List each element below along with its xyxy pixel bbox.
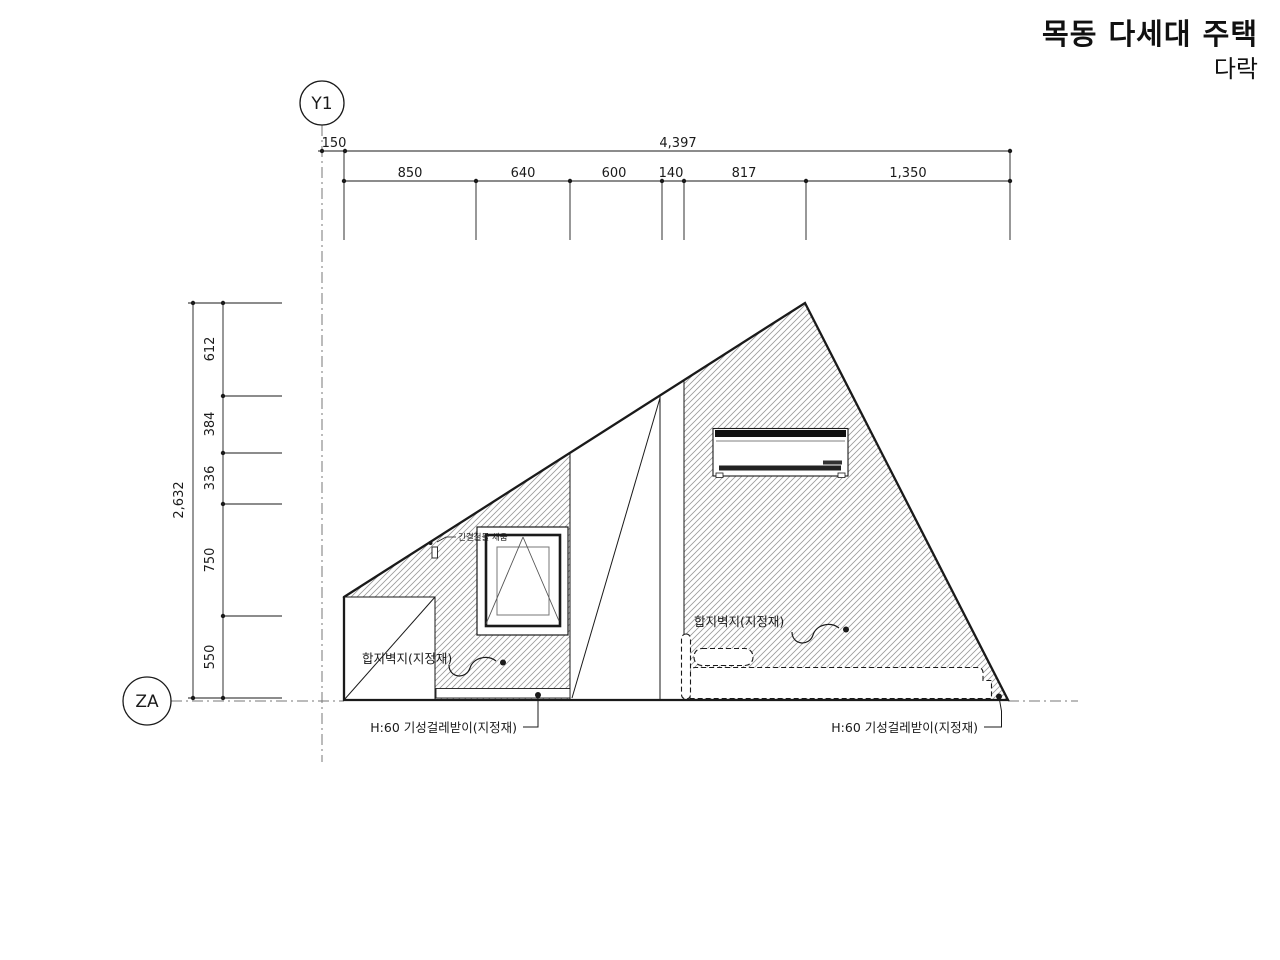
dim-817: 817 [732, 166, 757, 181]
dim-550: 550 [203, 645, 218, 670]
baseboard-leader-right [984, 697, 1002, 727]
bed-platform-outline [690, 668, 992, 699]
ac-louver [719, 466, 841, 471]
hatched-walls [344, 303, 1008, 700]
squiggle-dot-left [500, 660, 506, 666]
ac-display [823, 461, 842, 465]
joint-detail-block [432, 547, 438, 558]
dim-750: 750 [203, 548, 218, 573]
dim-850: 850 [398, 166, 423, 181]
dim-600: 600 [602, 166, 627, 181]
dim-140: 140 [659, 166, 684, 181]
window [477, 527, 568, 635]
y1-bubble-label: Y1 [310, 94, 332, 114]
dim-640: 640 [511, 166, 536, 181]
za-bubble-label: ZA [135, 692, 159, 712]
baseboard-strip [436, 689, 570, 699]
left-dimension-labels: 2,632 612 384 336 750 550 [172, 337, 218, 670]
dim-612: 612 [203, 337, 218, 362]
hatch-region-right [684, 303, 1008, 700]
squiggle-dot-right [843, 627, 849, 633]
top-dimensions [318, 151, 1010, 240]
ac-foot-left [716, 473, 723, 478]
window-joint-note: 긴결철물 채움 [458, 532, 508, 543]
ac-foot-right [838, 473, 845, 478]
grid-bubble-y1: Y1 [300, 81, 344, 125]
ac-top-grille [715, 430, 846, 437]
section-drawing: Y1 ZA 150 4,397 850 640 [0, 0, 1280, 960]
dim-2632: 2,632 [172, 481, 187, 518]
window-glass [497, 547, 549, 615]
wall-finish-label-left: 합지벽지(지정재) [362, 651, 452, 666]
baseboard-label-right: H:60 기성걸레받이(지정재) [831, 720, 978, 735]
wall-finish-label-right: 합지벽지(지정재) [694, 614, 784, 629]
dim-offset-150: 150 [322, 136, 347, 151]
dim-overall-4397: 4,397 [659, 136, 696, 151]
dim-1350: 1,350 [889, 166, 926, 181]
grid-bubble-za: ZA [123, 677, 171, 725]
bed-headboard-outline [682, 634, 691, 699]
drawing-sheet: 목동 다세대 주택 다락 Y1 ZA [0, 0, 1280, 960]
door-diagonal-line [344, 597, 435, 700]
pillow-outline [694, 649, 753, 666]
dim-384: 384 [203, 412, 218, 437]
baseboard-label-left: H:60 기성걸레받이(지정재) [370, 720, 517, 735]
dim-336: 336 [203, 466, 218, 491]
top-dimension-labels: 150 4,397 850 640 600 140 817 1,350 [322, 136, 927, 181]
air-conditioner [713, 429, 848, 478]
